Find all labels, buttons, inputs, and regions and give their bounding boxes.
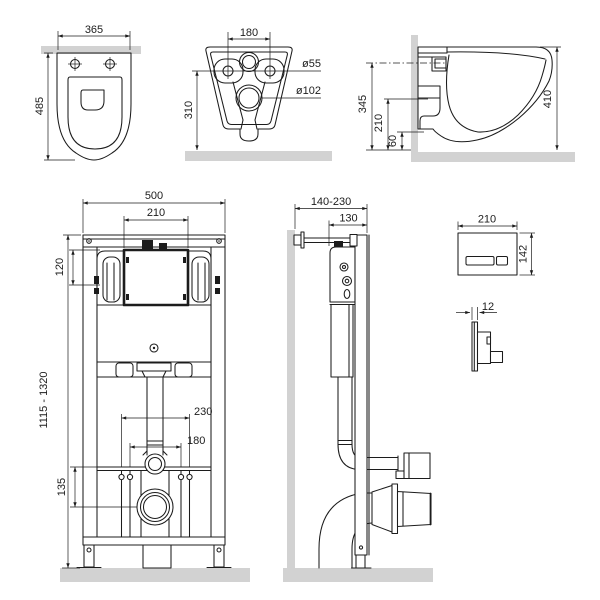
filling-valve-fitting xyxy=(142,240,153,250)
frame-bottom-bar xyxy=(83,537,225,545)
dim-fixing-inner-label: 180 xyxy=(187,435,205,447)
wall-surface xyxy=(411,35,418,152)
window-clip xyxy=(126,257,129,263)
frame-top-bar xyxy=(83,235,225,247)
wall-surface xyxy=(287,230,295,568)
fixing-hole-left xyxy=(68,57,82,71)
stud-hole xyxy=(187,474,192,479)
dim-plate-width-label: 210 xyxy=(478,214,496,226)
bowl-side-view: 410 345 210 60 xyxy=(357,35,575,162)
drain-outlet xyxy=(137,489,173,525)
cistern-side xyxy=(330,247,355,302)
bowl-inner-curve xyxy=(447,55,547,132)
cistern-clip xyxy=(215,288,220,294)
stud-hole xyxy=(127,474,132,479)
dim-bowl-depth-label: 485 xyxy=(34,97,46,115)
bowl-side-outline xyxy=(418,47,552,142)
stud-hole xyxy=(119,474,124,479)
supply-fitting xyxy=(159,243,167,249)
floor-surface xyxy=(185,151,332,161)
dim-rear-height-label: 310 xyxy=(183,101,195,119)
dim-frame-height-label: 1115 - 1320 xyxy=(38,371,50,428)
dim-plate-thickness-label: 12 xyxy=(482,301,494,313)
dim-hole-spacing-label: 180 xyxy=(240,27,258,39)
dim-depth-range-label: 140-230 xyxy=(311,196,351,208)
dim-opening-height-label: 120 xyxy=(54,258,66,276)
dim-outlet-height-label: 135 xyxy=(56,478,68,496)
dim-frame-depth-label: 130 xyxy=(339,213,357,225)
flush-plate-side-view: 12 xyxy=(456,301,503,371)
dim-large-hole-label: ø102 xyxy=(296,85,321,97)
access-window xyxy=(124,250,188,305)
technical-drawing: 365 485 ø55 ø102 180 xyxy=(0,0,600,600)
flush-pipe-connector xyxy=(404,453,430,479)
drain-pipe-lower xyxy=(143,545,171,568)
window-clip xyxy=(183,257,186,263)
drain-funnel-ring xyxy=(392,484,398,534)
seat-inner-outline xyxy=(68,77,122,149)
dim-bowl-width-label: 365 xyxy=(85,24,103,36)
dim-rim-offset-label: 60 xyxy=(387,135,399,147)
support-rod xyxy=(294,232,357,248)
cistern-side-lower xyxy=(331,305,353,378)
bowl-water-area xyxy=(81,90,104,110)
floor-surface xyxy=(60,568,250,582)
stud-hole xyxy=(178,474,183,479)
cistern-clip xyxy=(215,276,220,284)
frame-front-view: 500 210 120 1115 - 1320 230 180 135 xyxy=(38,190,250,582)
window-clip xyxy=(126,294,129,300)
dim-frame-width-label: 500 xyxy=(145,190,163,202)
bowl-rear-view: ø55 ø102 180 310 xyxy=(183,27,332,161)
drain-funnel xyxy=(372,486,392,533)
dim-total-height-label: 410 xyxy=(542,90,554,108)
adjustable-foot-side xyxy=(356,555,365,568)
bowl-top-view: 365 485 xyxy=(34,24,141,160)
floor-surface xyxy=(283,568,433,582)
dim-plate-height-label: 142 xyxy=(518,245,530,263)
frame-rail-side xyxy=(355,235,367,555)
frame-side-view: 140-230 130 xyxy=(283,196,433,582)
floor-surface xyxy=(411,152,575,162)
installation-drawing-sheet: 365 485 ø55 ø102 180 xyxy=(0,0,600,600)
plate-mechanism-lever xyxy=(491,352,503,363)
flush-plate-front-view: 210 142 xyxy=(458,214,535,276)
dim-small-hole-label: ø55 xyxy=(302,58,321,70)
dim-opening-width-label: 210 xyxy=(147,207,165,219)
outlet-detail xyxy=(418,86,440,98)
fixing-hole-right xyxy=(103,57,117,71)
cistern-clip xyxy=(94,276,99,284)
dim-inlet-height-label: 345 xyxy=(357,95,369,113)
window-clip xyxy=(183,294,186,300)
cistern-clip xyxy=(94,288,99,294)
flush-plate xyxy=(458,233,517,275)
dim-outlet-height-label: 210 xyxy=(373,114,385,132)
dim-fixing-outer-label: 230 xyxy=(194,406,212,418)
